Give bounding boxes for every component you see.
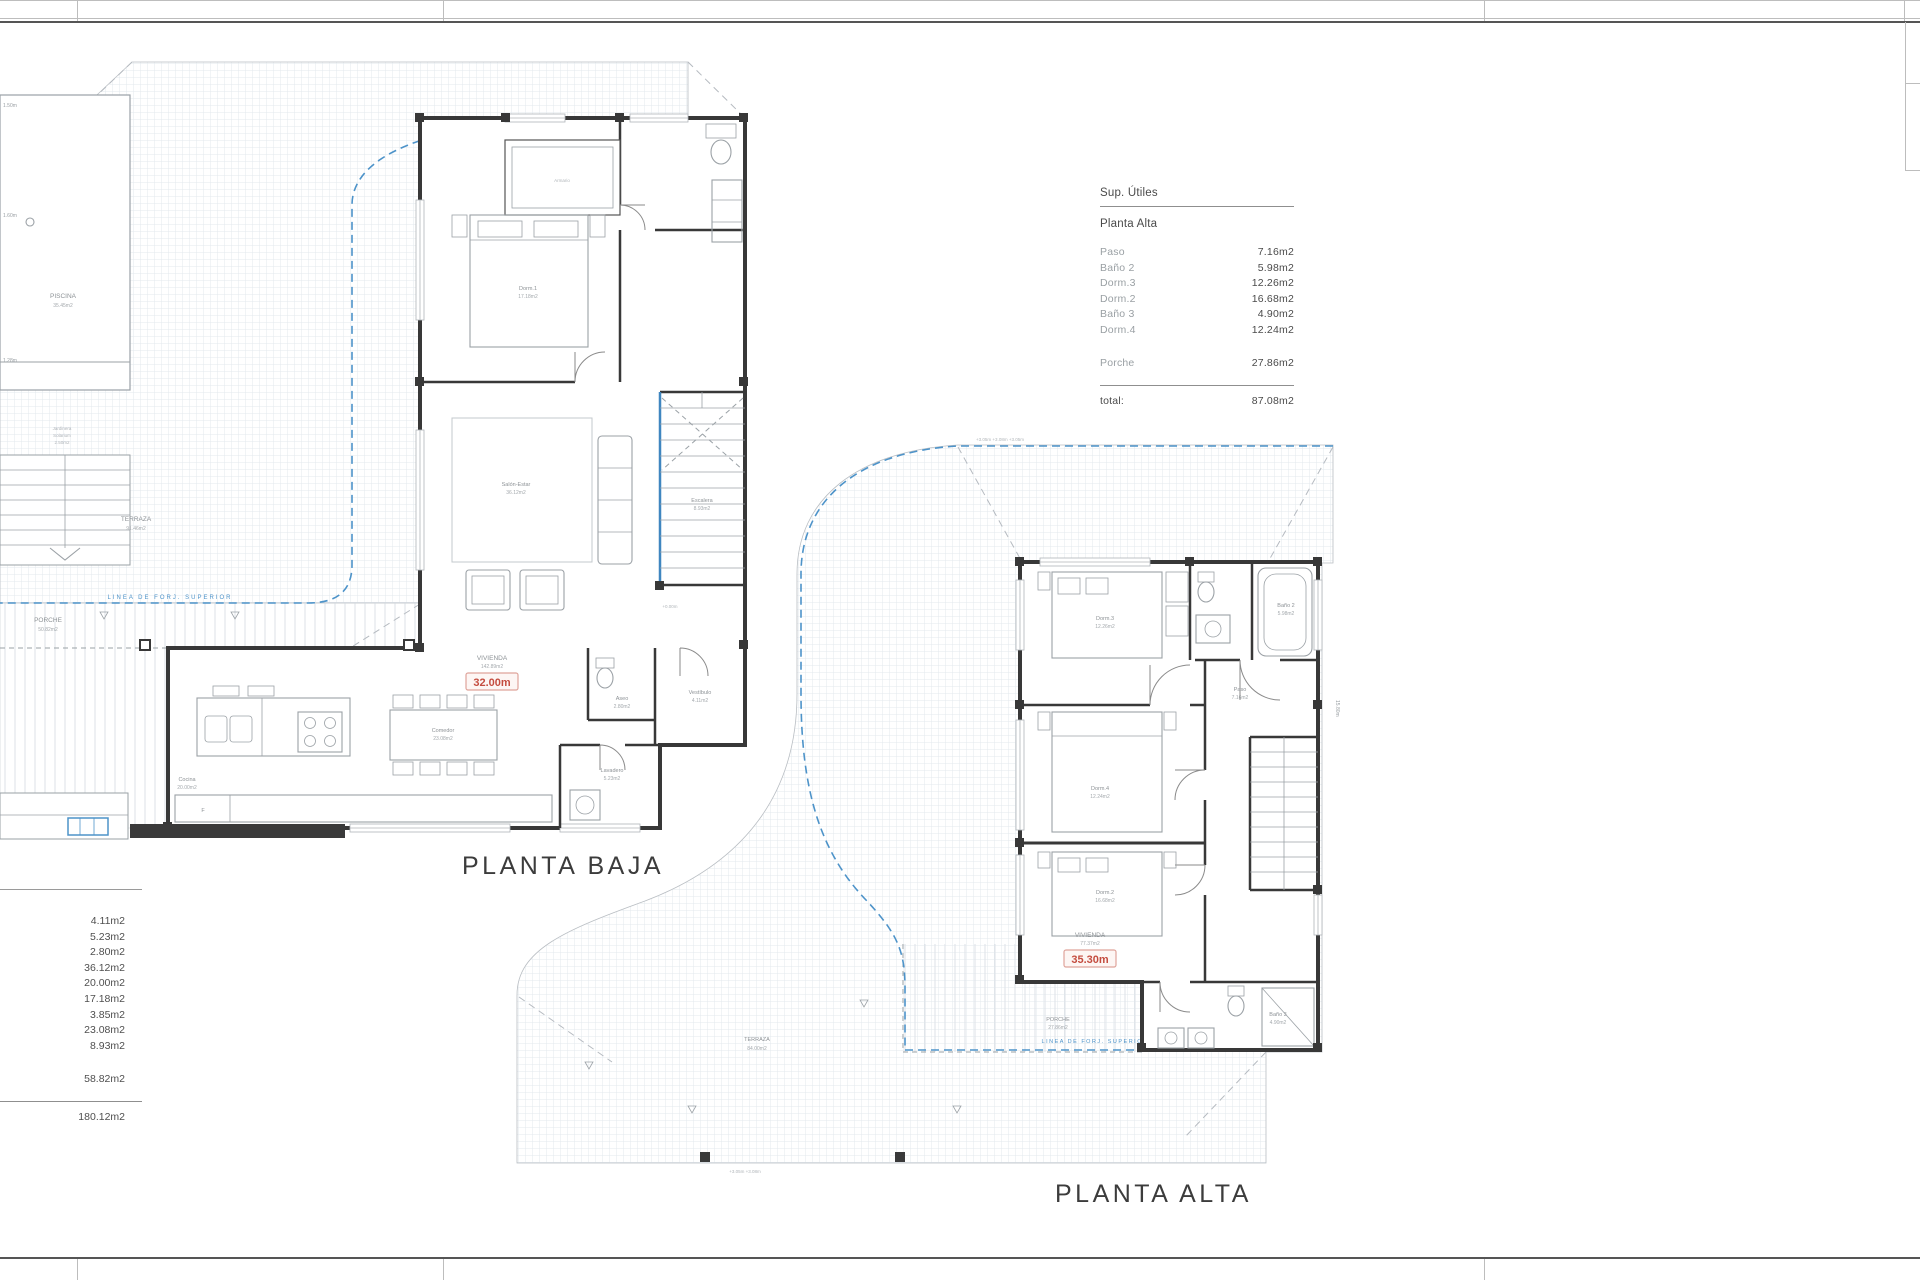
vivienda-label: VIVIENDA bbox=[1075, 932, 1106, 939]
terraza-label: TERRAZA bbox=[121, 516, 152, 523]
room-label-cocina: Cocina bbox=[178, 777, 196, 783]
garden-structure bbox=[0, 793, 128, 839]
pool bbox=[0, 95, 130, 390]
surface-value: 17.18m2 bbox=[0, 992, 125, 1008]
row-label: Dorm.3 bbox=[1100, 276, 1136, 292]
porch-column bbox=[140, 640, 150, 650]
sheet-bottom-divider-2 bbox=[443, 1259, 444, 1280]
surface-subtotal: 58.82m2 bbox=[0, 1072, 125, 1088]
house-outline bbox=[1020, 562, 1318, 1050]
pool-label: PISCINA bbox=[50, 293, 77, 300]
vivienda-area: 77.37m2 bbox=[1080, 941, 1100, 947]
porch-column bbox=[404, 640, 414, 650]
row-label: Dorm.2 bbox=[1100, 292, 1136, 308]
row-value: 16.68m2 bbox=[1252, 292, 1294, 308]
sup-utiles-total-rule bbox=[1100, 385, 1294, 386]
table-row: Baño 3 4.90m2 bbox=[1100, 307, 1294, 323]
porche-area: 50.82m2 bbox=[38, 627, 58, 633]
row-value: 5.98m2 bbox=[1258, 261, 1294, 277]
surface-value: 20.00m2 bbox=[0, 976, 125, 992]
sheet-top-divider-2 bbox=[443, 0, 444, 21]
sheet-right-box-line-1 bbox=[1905, 83, 1920, 84]
row-value: 27.86m2 bbox=[1252, 356, 1294, 372]
surface-value: 2.80m2 bbox=[0, 945, 125, 961]
room-label-paso: Paso bbox=[1234, 687, 1247, 693]
surface-value: 23.08m2 bbox=[0, 1023, 125, 1039]
terraza-label: TERRAZA bbox=[744, 1037, 770, 1043]
sheet-right-border bbox=[1905, 22, 1906, 170]
row-value: 12.24m2 bbox=[1252, 323, 1294, 339]
terrace-column bbox=[895, 1152, 905, 1162]
vivienda-area: 142.89m2 bbox=[481, 664, 503, 670]
table-row-porche: Porche 27.86m2 bbox=[1100, 356, 1294, 372]
room-area-dorm4: 12.24m2 bbox=[1090, 794, 1110, 800]
cota-roja-value: 32.00m bbox=[473, 677, 511, 689]
sheet-top-divider-1 bbox=[77, 0, 78, 21]
room-label-dorm1: Dorm.1 bbox=[519, 286, 537, 292]
dim-label-right: 15.80m bbox=[1334, 700, 1340, 717]
room-label-comedor: Comedor bbox=[432, 728, 455, 734]
planta-baja-surfaces-table: 4.11m2 5.23m2 2.80m2 36.12m2 20.00m2 17.… bbox=[0, 889, 142, 1123]
row-value: 4.90m2 bbox=[1258, 307, 1294, 323]
linea-forjado-superior-label: LINEA DE FORJ. SUPERIOR bbox=[1042, 1039, 1149, 1045]
total-value: 87.08m2 bbox=[1252, 395, 1294, 407]
row-label: Porche bbox=[1100, 356, 1134, 372]
row-label: Paso bbox=[1100, 245, 1125, 261]
dim-label: 1.28m bbox=[3, 358, 17, 364]
porche-label: PORCHE bbox=[1046, 1017, 1070, 1023]
table-row: Dorm.4 12.24m2 bbox=[1100, 323, 1294, 339]
sup-utiles-section: Planta Alta bbox=[1100, 218, 1294, 230]
room-label-bano2: Baño 2 bbox=[1277, 603, 1294, 609]
sheet-bottom-divider-3 bbox=[1484, 1259, 1485, 1280]
sheet-top-divider-4 bbox=[1904, 0, 1905, 21]
room-label-dorm3: Dorm.3 bbox=[1096, 616, 1114, 622]
porche-label: PORCHE bbox=[34, 617, 62, 624]
total-label: total: bbox=[1100, 395, 1124, 407]
sheet-top-border bbox=[0, 21, 1920, 23]
vivienda-label: VIVIENDA bbox=[477, 655, 508, 662]
wardrobe-label: Armario bbox=[554, 178, 570, 183]
level-marks-top: +3.05m +3.08m +3.05m bbox=[976, 437, 1024, 442]
terraza-area: 91.46m2 bbox=[126, 526, 146, 532]
room-label-dorm4: Dorm.4 bbox=[1091, 786, 1109, 792]
level-marks-bottom: +3.05m +3.08m bbox=[729, 1169, 761, 1174]
table-row: Dorm.2 16.68m2 bbox=[1100, 292, 1294, 308]
room-area-paso: 7.16m2 bbox=[1232, 695, 1249, 701]
room-area-comedor: 23.08m2 bbox=[433, 736, 453, 742]
planta-alta-plan: +3.05m +3.08m +3.05m +3.05m +3.08m LINEA… bbox=[510, 420, 1360, 1190]
surface-total: 180.12m2 bbox=[0, 1111, 125, 1123]
room-area-dorm3: 12.26m2 bbox=[1095, 624, 1115, 630]
dim-label: 1.60m bbox=[3, 213, 17, 219]
sup-utiles-title: Sup. Útiles bbox=[1100, 187, 1294, 199]
garden-wall bbox=[130, 824, 345, 838]
room-label-dorm2: Dorm.2 bbox=[1096, 890, 1114, 896]
terraza-area: 84.00m2 bbox=[747, 1046, 767, 1052]
row-label: Baño 2 bbox=[1100, 261, 1134, 277]
table-row-total: total: 87.08m2 bbox=[1100, 395, 1294, 407]
linea-forjado-superior-label: LINEA DE FORJ. SUPERIOR bbox=[107, 595, 232, 601]
exterior-stairs bbox=[0, 455, 130, 565]
room-area-dorm2: 16.68m2 bbox=[1095, 898, 1115, 904]
pool-area: 35.45m2 bbox=[53, 303, 73, 309]
sup-utiles-rule bbox=[1100, 206, 1294, 207]
room-area-bano3: 4.90m2 bbox=[1270, 1020, 1287, 1026]
pool-deck-note: Jardinera bbox=[53, 426, 72, 431]
sheet-bottom-border bbox=[0, 1257, 1920, 1259]
surface-value: 36.12m2 bbox=[0, 961, 125, 977]
left-table-bottom-rule bbox=[0, 1101, 142, 1102]
terrace-column bbox=[700, 1152, 710, 1162]
pool-deck-note: 2.50m2 bbox=[54, 440, 70, 445]
sheet-top-inner-line bbox=[0, 18, 1920, 19]
room-area-bano2: 5.98m2 bbox=[1278, 611, 1295, 617]
room-area-cocina: 20.00m2 bbox=[177, 785, 197, 791]
row-value: 12.26m2 bbox=[1252, 276, 1294, 292]
roof-ridge-line bbox=[688, 62, 744, 117]
row-label: Baño 3 bbox=[1100, 307, 1134, 323]
row-label: Dorm.4 bbox=[1100, 323, 1136, 339]
sheet-right-box-line-2 bbox=[1905, 170, 1920, 171]
dim-label: 1.50m bbox=[3, 103, 17, 109]
porche-area: 27.86m2 bbox=[1048, 1025, 1068, 1031]
sheet-top-divider-3 bbox=[1484, 0, 1485, 21]
sheet-bottom-divider-1 bbox=[77, 1259, 78, 1280]
surface-value: 5.23m2 bbox=[0, 930, 125, 946]
room-area-dorm1: 17.18m2 bbox=[518, 294, 538, 300]
table-row: Dorm.3 12.26m2 bbox=[1100, 276, 1294, 292]
cota-roja-value: 35.30m bbox=[1071, 954, 1109, 966]
table-row: Baño 2 5.98m2 bbox=[1100, 261, 1294, 277]
row-value: 7.16m2 bbox=[1258, 245, 1294, 261]
room-label-bano3: Baño 3 bbox=[1269, 1012, 1286, 1018]
surface-value: 3.85m2 bbox=[0, 1008, 125, 1024]
sup-utiles-table: Sup. Útiles Planta Alta Paso 7.16m2 Baño… bbox=[1100, 187, 1294, 407]
sheet-top-edge bbox=[0, 0, 1920, 1]
surface-value: 8.93m2 bbox=[0, 1039, 125, 1055]
pool-deck-note: Solarium bbox=[53, 433, 71, 438]
surface-value: 4.11m2 bbox=[0, 914, 125, 930]
table-row: Paso 7.16m2 bbox=[1100, 245, 1294, 261]
